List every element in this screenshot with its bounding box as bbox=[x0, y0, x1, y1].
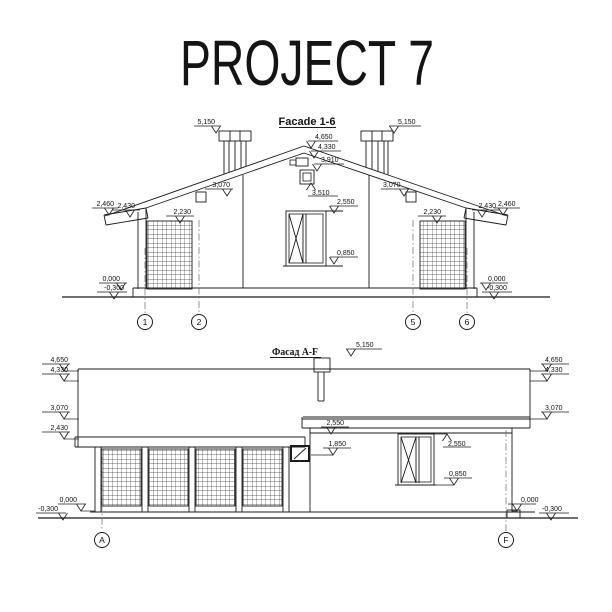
elevation-value: 4,330 bbox=[318, 144, 336, 151]
trellis-lattice bbox=[102, 449, 141, 506]
elevation-mark-porch-roof: 2,550 bbox=[321, 420, 349, 434]
axis-label: A bbox=[99, 535, 105, 545]
elevation-value: -0,300 bbox=[104, 285, 124, 292]
chimney-cap-right bbox=[361, 131, 393, 141]
elevation-value: 5,150 bbox=[197, 119, 215, 126]
elevation-mark-slope-left: 3,070 bbox=[205, 182, 233, 196]
axis-label: 6 bbox=[465, 317, 470, 327]
elevation-mark-porch-window-head: 1,850 bbox=[311, 441, 351, 455]
elevation-value: 0,000 bbox=[521, 497, 539, 504]
mark-arrow bbox=[400, 189, 409, 196]
elevation-value: 2,460 bbox=[498, 201, 516, 208]
chimney-cap-left bbox=[219, 131, 251, 141]
elevation-value: 5,150 bbox=[356, 342, 374, 349]
axis-label: F bbox=[503, 535, 508, 545]
drawing-line bbox=[294, 448, 306, 459]
axis-label: 2 bbox=[197, 317, 202, 327]
mark-arrow bbox=[310, 151, 319, 158]
elevation-value: 3,070 bbox=[545, 405, 563, 412]
axis-label: 1 bbox=[143, 317, 148, 327]
elevation-value: 0,000 bbox=[488, 276, 506, 283]
facade-a-f-title: Фасад А-F bbox=[272, 347, 318, 358]
trellis-lattice bbox=[149, 449, 188, 506]
elevation-value: 2,430 bbox=[117, 203, 135, 210]
facades-drawing: PROJECT 7 Facade 1-6 12565,1505,1504,650… bbox=[0, 0, 612, 612]
mark-arrow bbox=[543, 374, 552, 381]
drawing-line bbox=[104, 215, 106, 225]
mark-arrow bbox=[77, 504, 86, 511]
mark-arrow bbox=[59, 513, 68, 520]
trellis-lattice bbox=[196, 449, 235, 506]
elevation-mark-canopy-left: 2,430 bbox=[42, 425, 79, 439]
mark-arrow bbox=[490, 292, 499, 299]
elevation-value: 0,000 bbox=[59, 497, 77, 504]
trellis-lattice bbox=[420, 221, 465, 289]
elevation-mark-ridge-left: 4,330 bbox=[42, 367, 79, 381]
elevation-value: 1,850 bbox=[328, 441, 346, 448]
elevation-value: 3,070 bbox=[50, 405, 68, 412]
elevation-mark-ground-left: 0,000 bbox=[58, 497, 95, 511]
elevation-value: 2,550 bbox=[326, 420, 344, 427]
elevation-value: 0,000 bbox=[102, 276, 120, 283]
elevation-mark-chimney-right: 5,150 bbox=[389, 119, 421, 133]
mark-arrow bbox=[110, 292, 119, 299]
mark-arrow bbox=[329, 448, 338, 455]
mark-arrow bbox=[60, 374, 69, 381]
elevation-mark-chimney: 5,150 bbox=[346, 342, 382, 356]
elevation-value: 3,910 bbox=[321, 157, 339, 164]
drawing-line bbox=[106, 218, 148, 225]
elevation-mark-window-sill: 0,850 bbox=[330, 250, 359, 264]
gable-window-inner bbox=[303, 173, 311, 181]
mark-arrow bbox=[223, 189, 232, 196]
elevation-value: 3,070 bbox=[383, 182, 401, 189]
ridge-vent-tab bbox=[290, 160, 296, 165]
trellis-lattice bbox=[147, 221, 192, 289]
blueprint-page: PROJECT 7 Facade 1-6 12565,1505,1504,650… bbox=[0, 0, 612, 612]
facade-a-f-drawing: Фасад А-F AF5,1504,6504,3303,0702,4302,5… bbox=[36, 342, 578, 548]
elevation-value: 4,650 bbox=[50, 357, 68, 364]
elevation-mark-ground-right: 0,000 bbox=[508, 497, 539, 511]
elevation-value: 4,330 bbox=[545, 367, 563, 374]
slope-vent-right bbox=[406, 192, 416, 202]
elevation-mark-window-head: 2,550 bbox=[433, 434, 471, 448]
elevation-value: -0,300 bbox=[542, 506, 562, 513]
drawing-line bbox=[146, 153, 304, 208]
elevation-value: 2,430 bbox=[50, 425, 68, 432]
elevation-value: 3,070 bbox=[212, 182, 230, 189]
elevation-value: -0,300 bbox=[487, 285, 507, 292]
elevation-mark-gable-window: 3,510 bbox=[307, 183, 339, 197]
chimney-cap bbox=[314, 358, 330, 372]
elevation-value: -0,300 bbox=[38, 506, 58, 513]
ridge-vent bbox=[296, 158, 308, 166]
drawing-line bbox=[506, 215, 508, 225]
elevation-value: 0,850 bbox=[337, 250, 355, 257]
mark-arrow bbox=[543, 412, 552, 419]
slope-vent-left bbox=[196, 192, 206, 202]
elevation-value: 5,150 bbox=[398, 119, 416, 126]
mark-arrow bbox=[547, 513, 556, 520]
mark-arrow bbox=[390, 126, 399, 133]
elevation-value: 2,230 bbox=[173, 209, 191, 216]
gable-window bbox=[300, 170, 314, 184]
elevation-value: 2,550 bbox=[448, 441, 466, 448]
elevation-mark-ridge-vent: 3,910 bbox=[313, 157, 345, 171]
mark-arrow bbox=[330, 206, 339, 213]
facade-1-6-title: Facade 1-6 bbox=[279, 116, 336, 128]
elevation-mark-slope-right: 3,070 bbox=[530, 405, 569, 419]
elevation-value: 2,230 bbox=[423, 209, 441, 216]
elevation-mark-slope-right: 3,070 bbox=[381, 182, 409, 196]
facade-1-6-drawing: Facade 1-6 12565,1505,1504,6504,3303,910… bbox=[62, 116, 550, 330]
elevation-mark-chimney-left: 5,150 bbox=[194, 119, 221, 133]
elevation-value: 0,850 bbox=[449, 471, 467, 478]
mark-arrow bbox=[450, 478, 459, 485]
mark-arrow bbox=[60, 412, 69, 419]
axis-label: 5 bbox=[411, 317, 416, 327]
mark-arrow bbox=[60, 432, 69, 439]
elevation-value: 3,510 bbox=[312, 190, 330, 197]
mark-arrow bbox=[330, 257, 339, 264]
elevation-value: 2,550 bbox=[337, 199, 355, 206]
elevation-value: 2,460 bbox=[96, 201, 114, 208]
elevation-value: 2,430 bbox=[478, 203, 496, 210]
elevation-value: 4,650 bbox=[315, 134, 333, 141]
elevation-mark-slope-left: 3,070 bbox=[42, 405, 79, 419]
mark-arrow bbox=[347, 349, 356, 356]
elevation-value: 4,650 bbox=[545, 357, 563, 364]
elevation-mark-ridge: 4,330 bbox=[310, 144, 342, 158]
trellis-lattice bbox=[243, 449, 282, 506]
elevation-value: 4,330 bbox=[50, 367, 68, 374]
mark-arrow bbox=[443, 434, 452, 441]
elevation-mark-ridge-right: 4,330 bbox=[530, 367, 569, 381]
elevation-mark-window-sill: 0,850 bbox=[436, 471, 472, 485]
page-title: PROJECT 7 bbox=[180, 27, 434, 99]
drawing-line bbox=[464, 218, 506, 225]
